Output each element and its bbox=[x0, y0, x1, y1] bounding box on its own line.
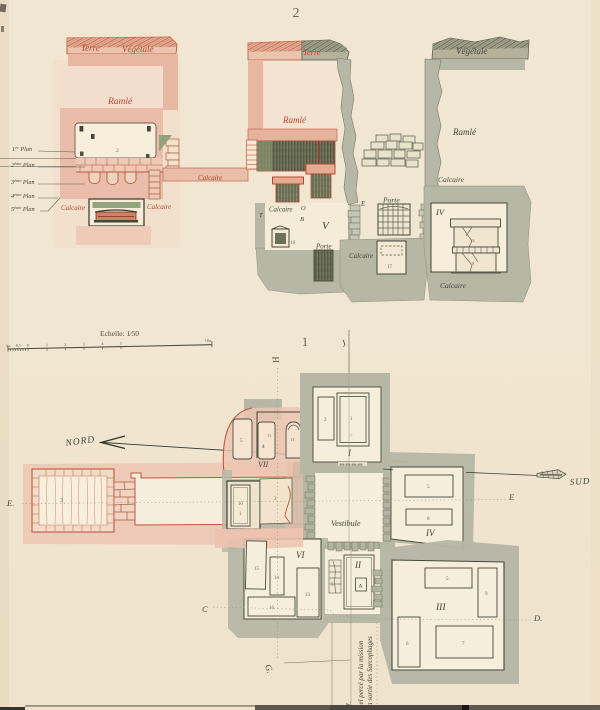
svg-text:IV: IV bbox=[425, 528, 436, 538]
svg-text:Ramlé: Ramlé bbox=[107, 97, 133, 107]
svg-text:11: 11 bbox=[267, 433, 271, 438]
svg-text:E: E bbox=[508, 492, 515, 502]
svg-text:D.: D. bbox=[533, 613, 542, 623]
svg-text:Calcaire: Calcaire bbox=[349, 252, 373, 260]
svg-text:3: 3 bbox=[83, 341, 85, 346]
svg-text:3ème Plan: 3ème Plan bbox=[10, 178, 35, 186]
svg-text:2: 2 bbox=[64, 342, 66, 347]
svg-text:II: II bbox=[354, 560, 362, 570]
svg-text:VI: VI bbox=[296, 550, 305, 560]
svg-text:15: 15 bbox=[254, 567, 260, 572]
svg-text:nel percé par la mission: nel percé par la mission bbox=[357, 640, 365, 708]
svg-text:1: 1 bbox=[46, 342, 48, 347]
svg-text:B: B bbox=[300, 216, 304, 223]
svg-text:Calcaire: Calcaire bbox=[440, 281, 467, 290]
svg-text:2: 2 bbox=[116, 148, 119, 154]
svg-text:Porte: Porte bbox=[315, 243, 332, 251]
svg-text:VII: VII bbox=[258, 460, 269, 469]
svg-text:1m: 1m bbox=[6, 343, 11, 348]
svg-text:13: 13 bbox=[470, 238, 475, 243]
svg-text:16: 16 bbox=[291, 241, 296, 246]
svg-text:Porte: Porte bbox=[382, 196, 400, 205]
svg-text:Végétale: Végétale bbox=[122, 44, 153, 54]
svg-text:C: C bbox=[202, 604, 208, 614]
svg-text:Echelle: 1⁄50: Echelle: 1⁄50 bbox=[100, 329, 139, 338]
svg-text:Calcaire: Calcaire bbox=[147, 203, 171, 211]
svg-text:5: 5 bbox=[120, 341, 122, 346]
svg-text:E.: E. bbox=[6, 498, 14, 508]
svg-text:4: 4 bbox=[262, 444, 265, 450]
svg-text:E: E bbox=[360, 200, 366, 208]
svg-text:Vestibule: Vestibule bbox=[331, 519, 361, 528]
svg-text:16: 16 bbox=[269, 606, 275, 611]
svg-text:Terre: Terre bbox=[81, 43, 100, 53]
svg-text:10: 10 bbox=[238, 502, 243, 507]
svg-text:O: O bbox=[301, 205, 306, 212]
svg-text:4: 4 bbox=[101, 341, 103, 346]
svg-text:Végétale: Végétale bbox=[456, 46, 487, 56]
svg-text:14: 14 bbox=[274, 576, 280, 581]
svg-text:A: A bbox=[359, 584, 363, 590]
svg-text:1er Plan: 1er Plan bbox=[12, 145, 32, 153]
svg-text:T: T bbox=[259, 212, 263, 219]
svg-text:11: 11 bbox=[290, 437, 294, 442]
svg-text:Terre: Terre bbox=[303, 47, 321, 57]
svg-text:13: 13 bbox=[305, 593, 311, 598]
svg-text:Ramlé: Ramlé bbox=[282, 115, 307, 125]
svg-text:Calcaire: Calcaire bbox=[61, 204, 85, 212]
svg-text:17: 17 bbox=[387, 265, 393, 270]
svg-text:Calcaire: Calcaire bbox=[438, 175, 465, 184]
svg-text:0: 0 bbox=[27, 343, 29, 348]
svg-text:2: 2 bbox=[293, 6, 300, 21]
svg-text:Calcaire: Calcaire bbox=[198, 174, 222, 182]
svg-text:1: 1 bbox=[302, 334, 309, 349]
svg-text:Calcaire: Calcaire bbox=[269, 207, 293, 214]
svg-text:SUD: SUD bbox=[569, 476, 590, 487]
svg-text:Ramlé: Ramlé bbox=[452, 127, 477, 137]
svg-text:la sortie des Sarcophages: la sortie des Sarcophages bbox=[366, 636, 374, 708]
svg-text:10m: 10m bbox=[205, 338, 212, 343]
svg-text:III: III bbox=[435, 603, 446, 613]
